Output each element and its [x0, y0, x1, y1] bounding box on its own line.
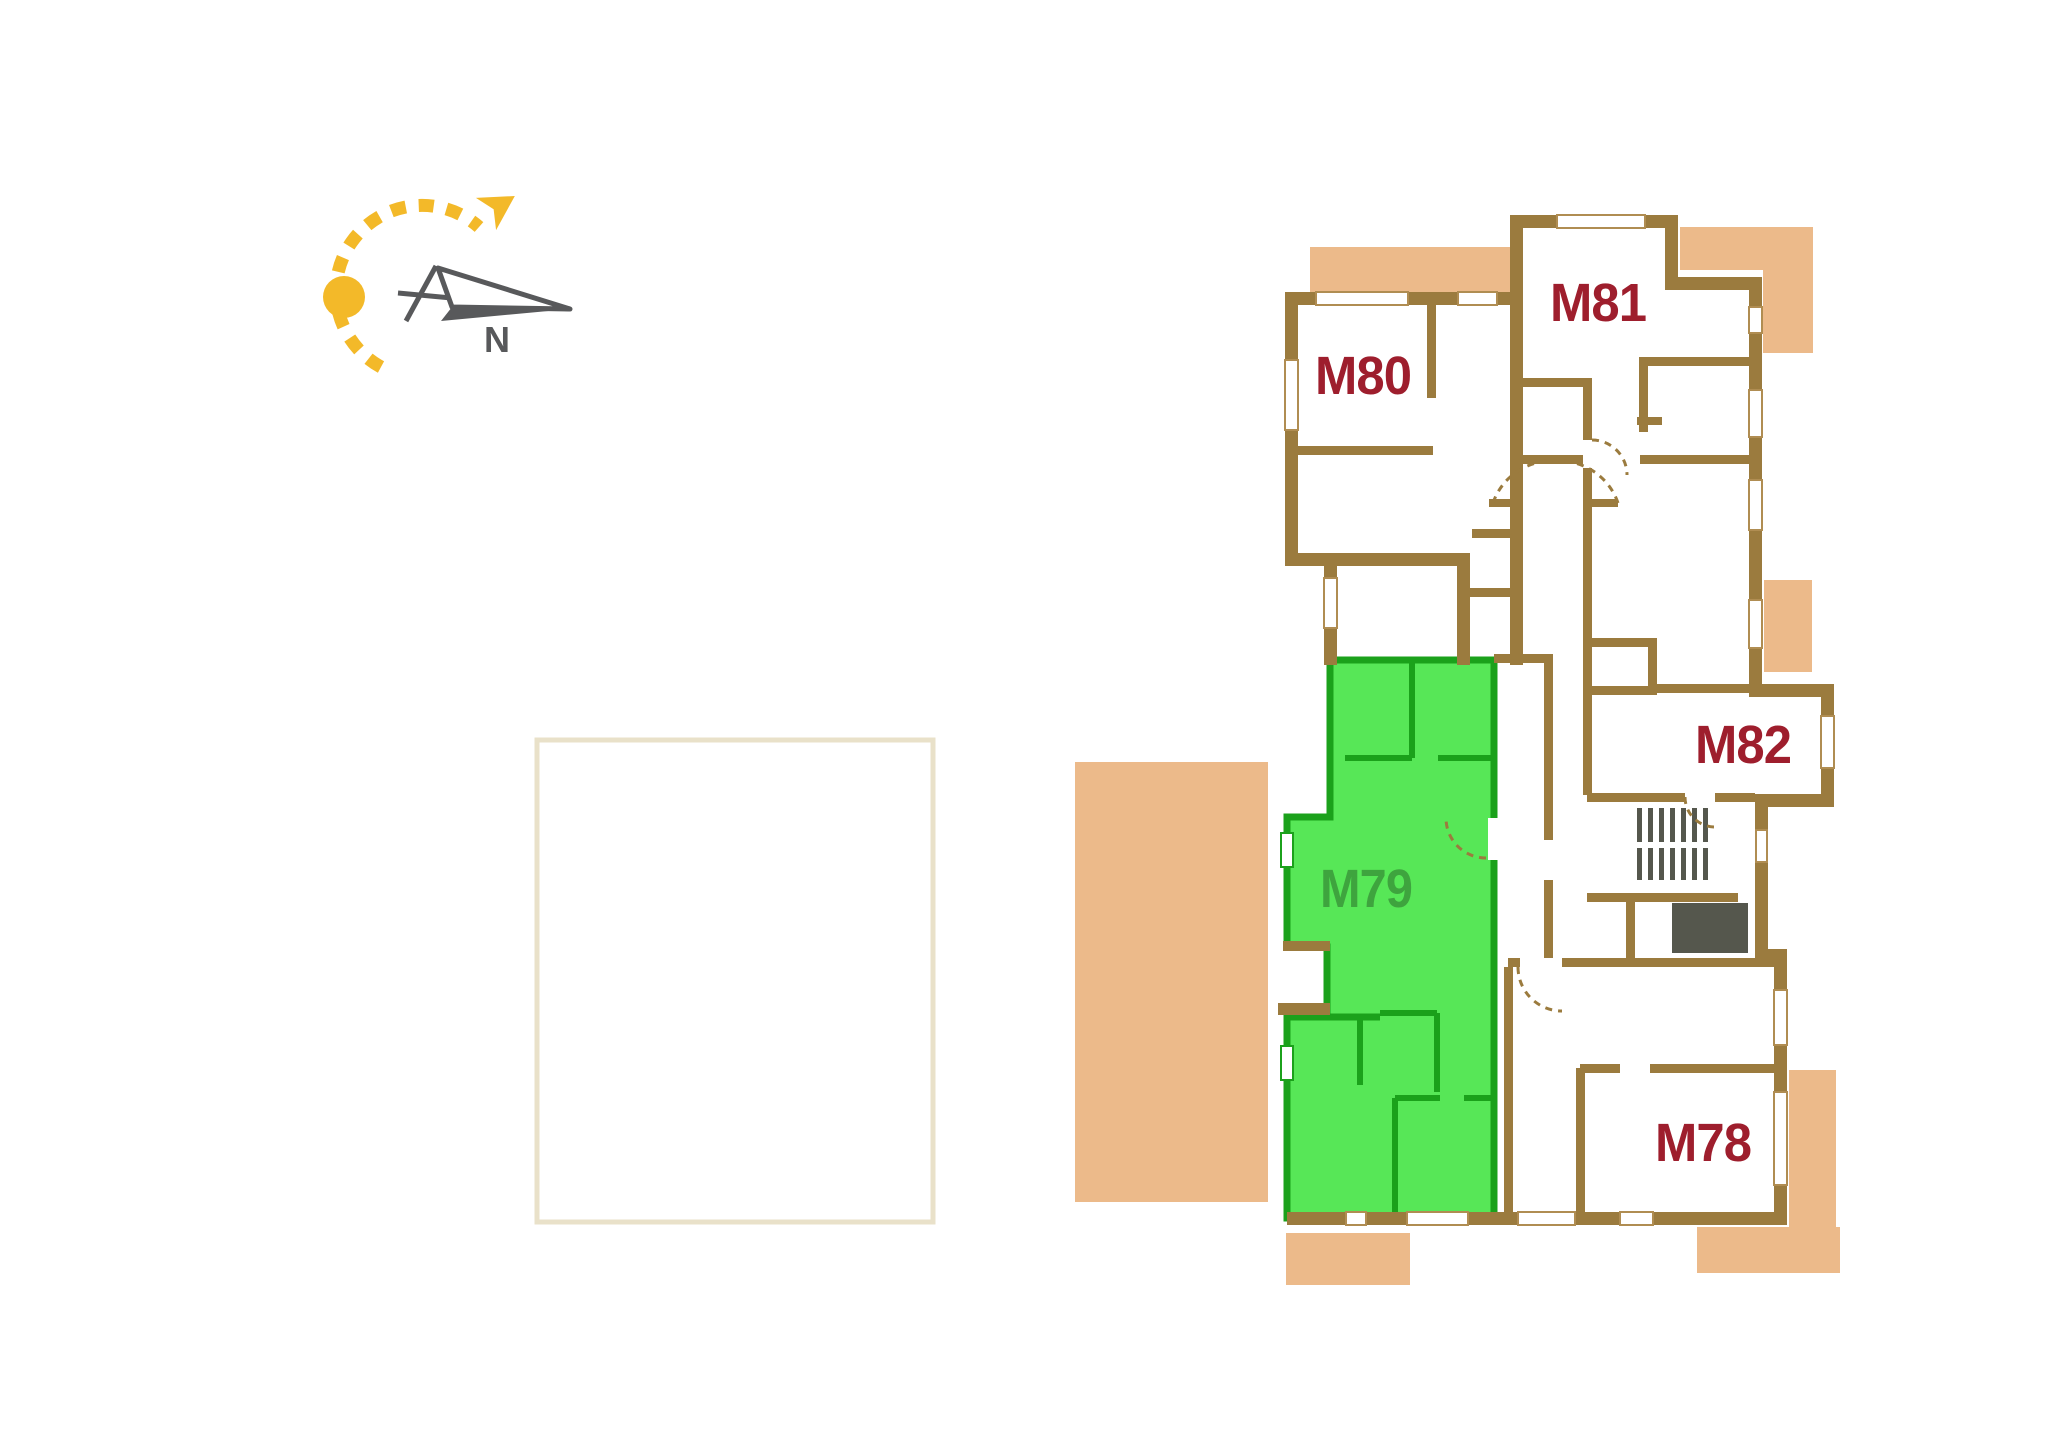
north-label: N — [484, 319, 510, 360]
wall-segment — [1291, 446, 1433, 455]
wall-segment — [1587, 638, 1652, 647]
window — [1749, 390, 1762, 437]
unit-m79-entry-gap — [1488, 818, 1501, 860]
unit-label-m78[interactable]: M78 — [1655, 1113, 1751, 1173]
wall-segment — [1652, 684, 1749, 693]
wall-segment — [1520, 378, 1592, 387]
wall-segment — [1588, 499, 1618, 507]
adjacent-plot-outline — [537, 740, 933, 1222]
wall-segment — [1580, 1064, 1620, 1073]
wall-segment — [1285, 553, 1470, 566]
wall-segment — [1504, 967, 1513, 1212]
window — [1774, 990, 1787, 1045]
unit-m79-area[interactable] — [1287, 660, 1494, 1218]
window — [1316, 292, 1408, 305]
wall-segment — [1587, 793, 1685, 802]
balcony-top — [1310, 247, 1511, 292]
window — [1407, 1212, 1468, 1225]
unit-m79-highlight[interactable] — [1281, 660, 1501, 1218]
wall-segment — [1510, 215, 1523, 665]
wall-segment — [1583, 380, 1592, 440]
wall-segment — [1283, 941, 1330, 951]
window — [1281, 833, 1293, 867]
unit-label-m79[interactable]: M79 — [1320, 859, 1412, 919]
window — [1281, 1046, 1293, 1080]
wall-segment — [1427, 292, 1436, 398]
balcony-bottom-small — [1286, 1233, 1410, 1285]
wall-segment — [1463, 588, 1520, 597]
balcony-bottom-right-b — [1697, 1227, 1840, 1273]
window — [1285, 360, 1298, 430]
wall-segment — [1587, 893, 1738, 902]
floor-plan-page: M80 M81 M82 M78 M79 N — [0, 0, 2048, 1448]
window — [1749, 480, 1762, 530]
unit-label-m82[interactable]: M82 — [1695, 715, 1791, 775]
wall-segment — [1278, 1003, 1330, 1015]
wall-segment — [1650, 1064, 1774, 1073]
wall-segment — [1643, 357, 1755, 366]
wall-segment — [1562, 958, 1774, 967]
window — [1458, 292, 1497, 305]
wall-segment — [1576, 1068, 1585, 1212]
balcony-top-right-b — [1763, 227, 1813, 353]
sun-arrowhead-icon — [476, 180, 525, 230]
window — [1749, 307, 1762, 333]
balcony-right-small — [1764, 580, 1812, 672]
window — [1557, 215, 1645, 228]
wall-segment — [1640, 455, 1755, 464]
wall-segment — [1494, 654, 1553, 663]
wall-segment — [1583, 468, 1592, 795]
window — [1518, 1212, 1575, 1225]
wall-segment — [1587, 686, 1652, 695]
wall-segment — [1457, 553, 1470, 665]
wall-segment — [1472, 529, 1513, 538]
window — [1821, 716, 1834, 768]
floor-plan-canvas: M80 M81 M82 M78 M79 N — [0, 0, 2048, 1448]
window — [1749, 600, 1762, 648]
unit-label-m81[interactable]: M81 — [1550, 273, 1646, 333]
elevator-shaft — [1672, 903, 1748, 953]
terrace-left-large — [1075, 762, 1268, 1202]
window — [1346, 1212, 1366, 1225]
wall-segment — [1715, 793, 1755, 802]
wall-segment — [1755, 794, 1768, 962]
unit-label-m80[interactable]: M80 — [1315, 346, 1411, 406]
wall-segment — [1520, 455, 1583, 464]
window — [1756, 830, 1767, 862]
wall-segment — [1637, 417, 1662, 425]
sun-dot-icon — [323, 276, 365, 318]
wall-segment — [1626, 898, 1635, 958]
window — [1620, 1212, 1653, 1225]
wall-segment — [1508, 958, 1520, 967]
wall-segment — [1544, 658, 1553, 840]
window — [1774, 1092, 1787, 1185]
wall-segment — [1665, 277, 1762, 290]
wall-segment — [1544, 880, 1553, 958]
compass: N — [323, 180, 570, 367]
window — [1324, 578, 1337, 628]
north-needle-outline — [438, 268, 570, 309]
